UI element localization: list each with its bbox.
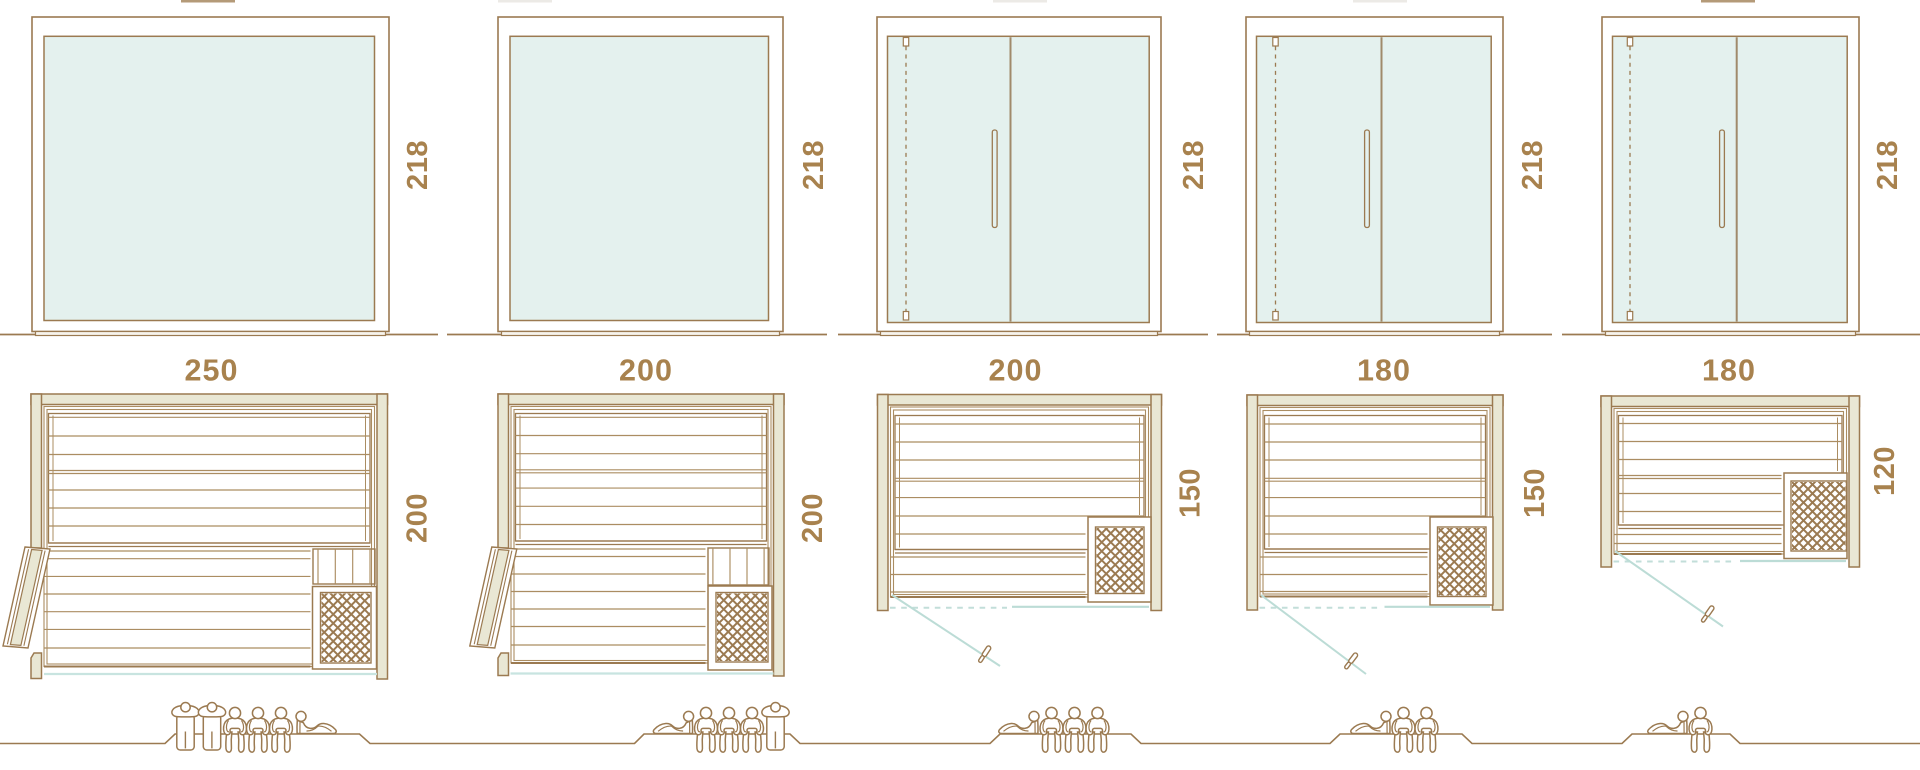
svg-text:120: 120 [1869,446,1901,496]
svg-text:218: 218 [402,140,434,190]
svg-text:200: 200 [989,354,1043,388]
svg-text:218: 218 [1178,140,1210,190]
svg-text:200: 200 [619,354,673,388]
svg-text:200: 200 [402,493,434,543]
svg-text:218: 218 [1517,140,1549,190]
svg-text:180: 180 [1702,354,1756,388]
svg-text:180: 180 [1357,354,1411,388]
svg-text:150: 150 [1519,468,1551,518]
svg-text:200: 200 [797,493,829,543]
svg-text:218: 218 [1872,140,1904,190]
svg-text:150: 150 [1175,468,1207,518]
svg-text:250: 250 [185,354,239,388]
svg-text:218: 218 [798,140,830,190]
